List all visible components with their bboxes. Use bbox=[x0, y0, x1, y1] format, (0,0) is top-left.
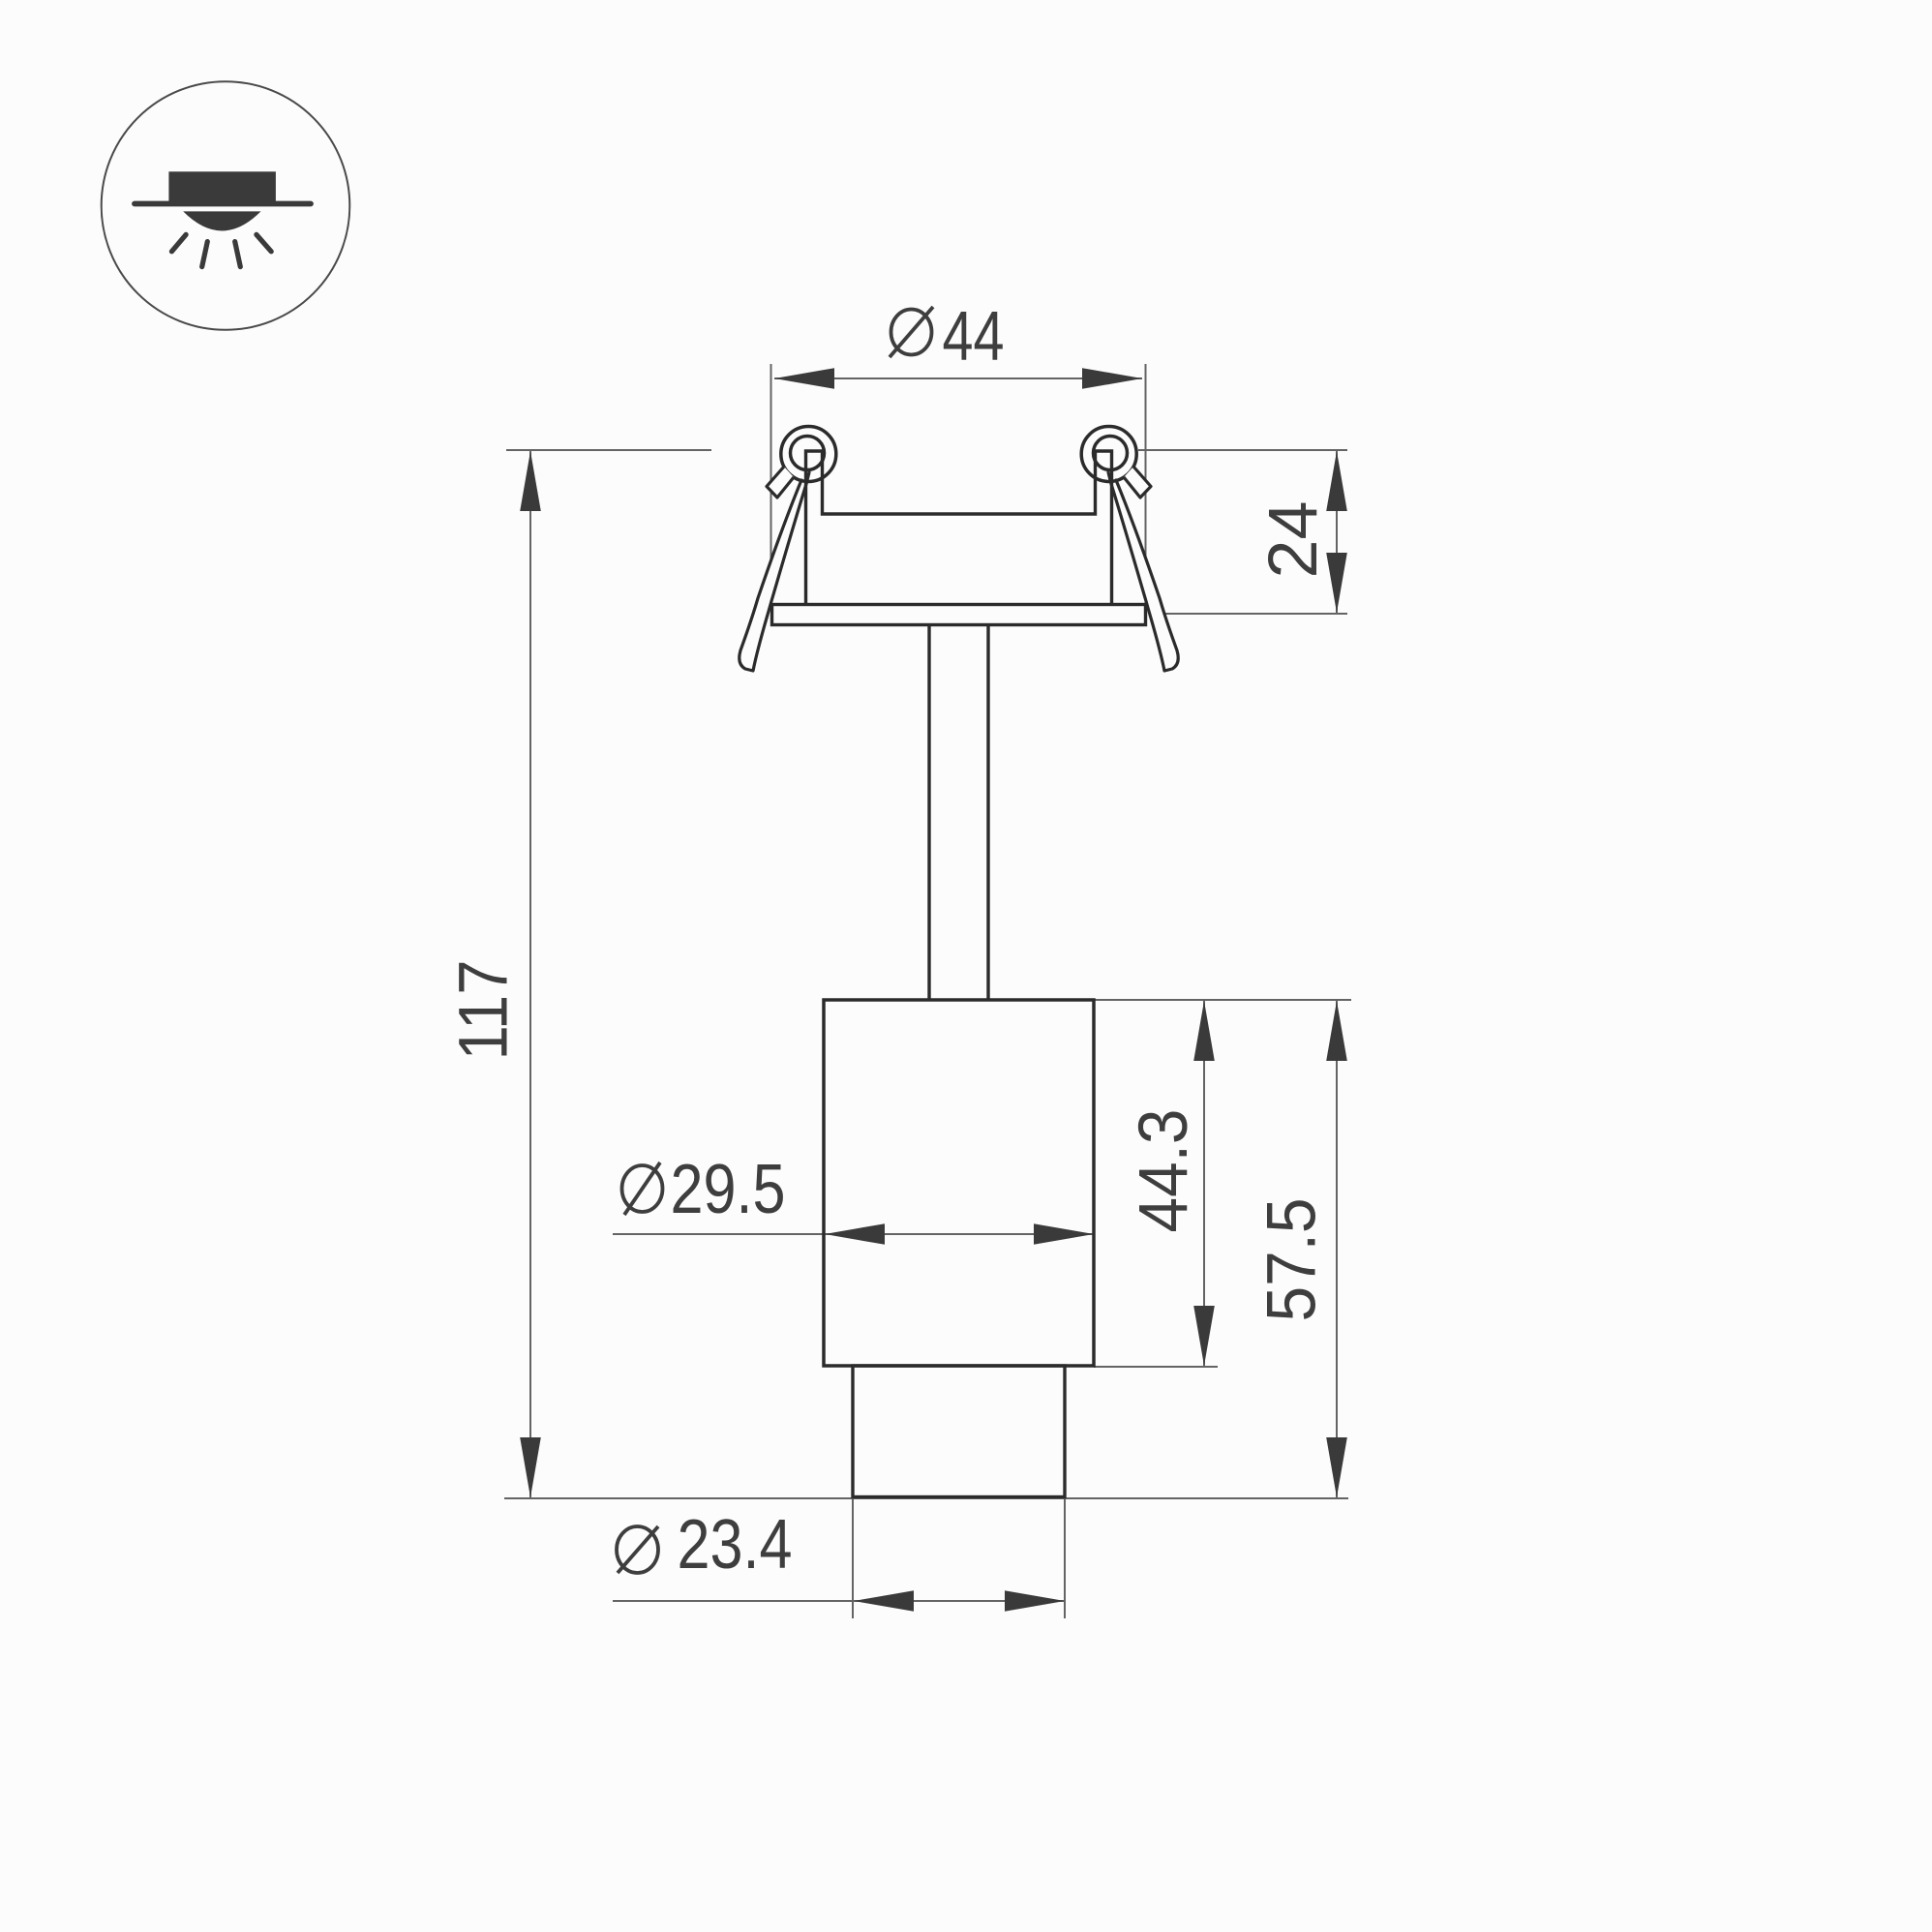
svg-text:44: 44 bbox=[943, 298, 1005, 376]
svg-text:57.5: 57.5 bbox=[1254, 1198, 1331, 1322]
svg-text:29.5: 29.5 bbox=[671, 1151, 786, 1228]
svg-text:44.3: 44.3 bbox=[1126, 1109, 1202, 1233]
svg-text:24: 24 bbox=[1255, 501, 1332, 579]
svg-text:117: 117 bbox=[446, 960, 523, 1061]
svg-text:23.4: 23.4 bbox=[678, 1506, 793, 1584]
